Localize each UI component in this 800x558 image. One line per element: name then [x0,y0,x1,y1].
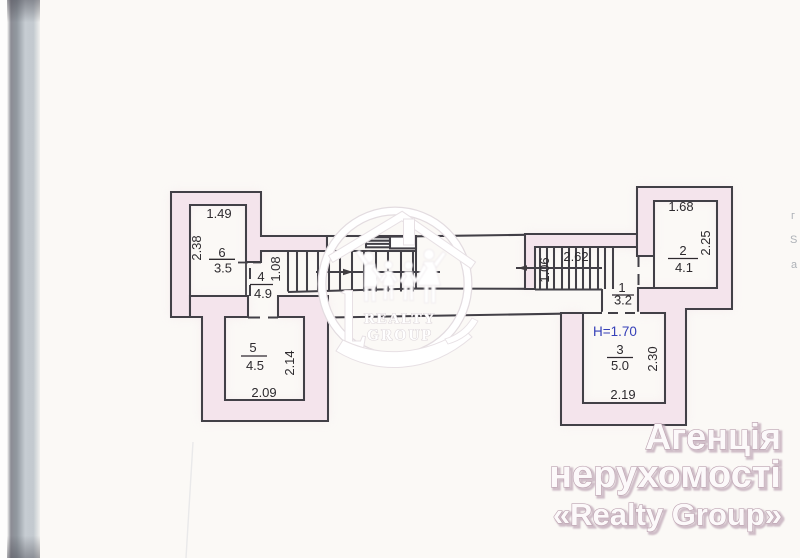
svg-text:4.1: 4.1 [675,260,693,275]
svg-text:REALTY: REALTY [364,311,436,327]
svg-text:1.08: 1.08 [268,256,283,281]
svg-text:5: 5 [249,340,256,355]
svg-text:1.68: 1.68 [668,199,693,214]
svg-text:1.06: 1.06 [537,257,552,282]
svg-text:г: г [791,210,795,222]
svg-text:5.0: 5.0 [611,358,629,373]
svg-text:6: 6 [218,245,225,260]
svg-text:3.2: 3.2 [614,293,632,308]
svg-text:нерухомості: нерухомості [549,454,781,496]
svg-text:2.19: 2.19 [610,387,635,402]
svg-text:Агенція: Агенція [645,416,781,457]
svg-text:H=1.70: H=1.70 [593,324,637,339]
svg-text:2.25: 2.25 [698,230,713,255]
svg-text:2.62: 2.62 [563,249,588,264]
svg-text:2.09: 2.09 [251,385,276,400]
svg-text:1.49: 1.49 [206,206,231,221]
svg-text:4.5: 4.5 [246,358,264,373]
svg-text:S: S [790,234,797,246]
svg-text:3.5: 3.5 [214,261,232,276]
svg-text:4.9: 4.9 [254,286,272,301]
svg-text:2.30: 2.30 [645,346,660,371]
svg-text:2.14: 2.14 [282,350,297,375]
svg-text:GROUP: GROUP [367,327,433,344]
svg-text:а: а [791,259,798,271]
svg-text:2: 2 [679,243,686,258]
svg-text:2.38: 2.38 [189,235,204,260]
svg-text:«Realty Group»: «Realty Group» [553,497,782,532]
svg-text:3: 3 [616,342,623,357]
svg-text:4: 4 [257,269,264,284]
